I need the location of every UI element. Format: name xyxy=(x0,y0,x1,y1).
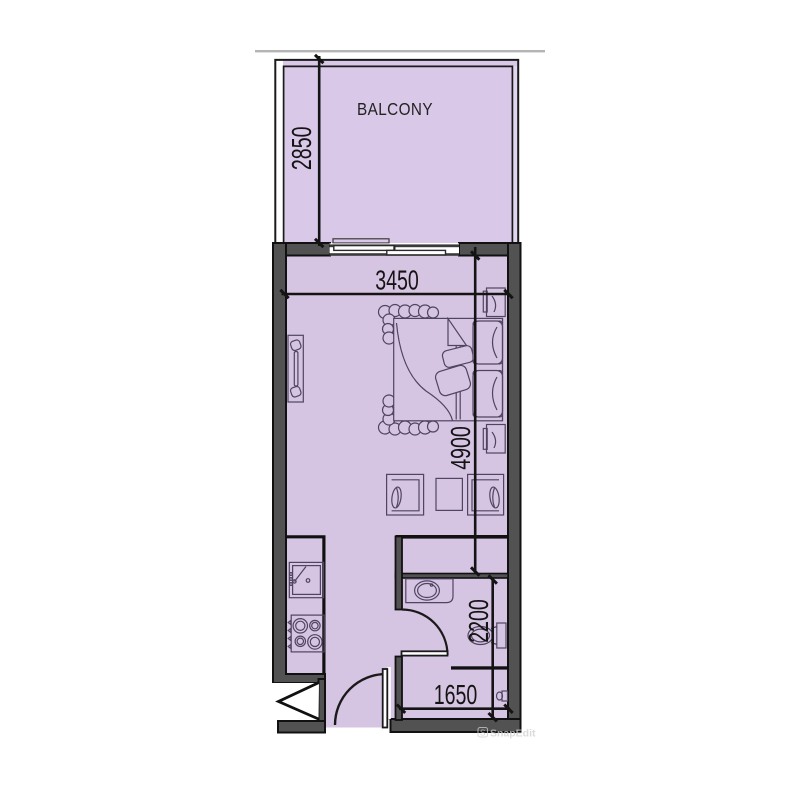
svg-text:S: S xyxy=(480,729,485,738)
svg-text:SnapEdit: SnapEdit xyxy=(490,728,536,740)
svg-text:2850: 2850 xyxy=(287,127,318,171)
svg-text:2200: 2200 xyxy=(464,599,495,643)
svg-text:3450: 3450 xyxy=(375,265,419,296)
svg-text:1650: 1650 xyxy=(434,680,478,711)
svg-text:4900: 4900 xyxy=(446,426,477,470)
svg-text:BALCONY: BALCONY xyxy=(357,99,433,119)
